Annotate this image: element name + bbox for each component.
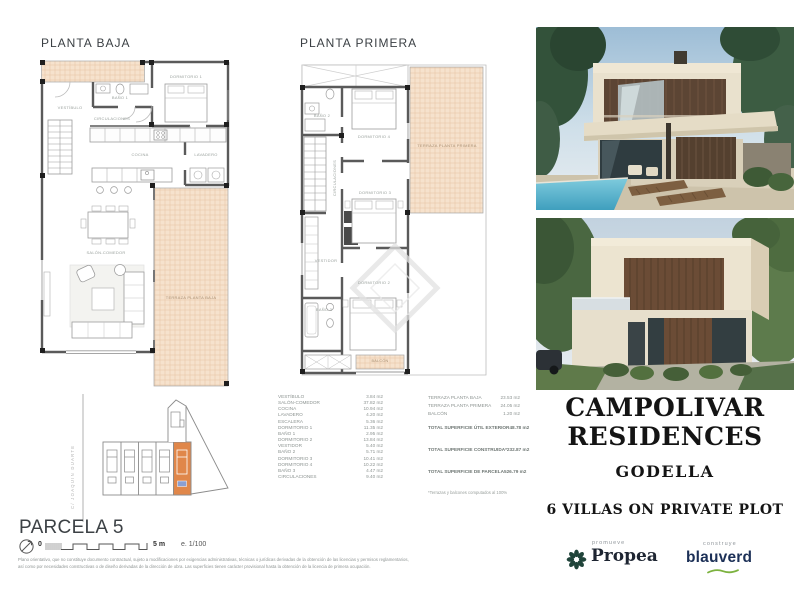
project-location: GODELLA bbox=[536, 462, 794, 481]
villa-photo-pool bbox=[536, 27, 794, 210]
room-label-circulaciones-pb: CIRCULACIONES bbox=[94, 117, 130, 121]
room-label-vestidor: VESTIDOR bbox=[315, 259, 337, 263]
room-label-bano1: BAÑO 1 bbox=[112, 96, 128, 100]
room-label-bano3: BAÑO 3 bbox=[316, 308, 332, 312]
surface-total-row: TOTAL SUPERFICIE CONSTRUIDA* 232.87 m2 bbox=[428, 446, 520, 454]
surface-label: TERRAZA PLANTA BAJA bbox=[428, 394, 482, 402]
room-label-dormitorio2: DORMITORIO 2 bbox=[358, 281, 390, 285]
laundry-appliances bbox=[190, 168, 224, 182]
room-label-circulaciones-pp: CIRCULACIONES bbox=[333, 160, 337, 196]
villa-photo-garden bbox=[536, 218, 794, 390]
room-label-terraza-pb: TERRAZA PLANTA BAJA bbox=[166, 296, 216, 300]
upper-plot bbox=[168, 400, 186, 442]
dining-table bbox=[81, 206, 135, 244]
stairs bbox=[304, 137, 326, 211]
bed-dormitorio4 bbox=[352, 89, 396, 129]
surface-table-interior: VESTÍBULO 3.84 m2 SALÓN-COMEDOR 37.82 m2… bbox=[278, 394, 383, 480]
bottom-closet bbox=[305, 355, 351, 369]
room-label-terraza-pp: TERRAZA PLANTA PRIMERA bbox=[417, 144, 476, 148]
surface-label: BALCÓN bbox=[428, 410, 447, 418]
surface-total-label: TOTAL SUPERFICIE ÚTIL EXTERIOR bbox=[428, 424, 509, 432]
room-label-vestibulo: VESTÍBULO bbox=[58, 106, 83, 110]
scale-end-label: 5 m bbox=[153, 541, 165, 548]
surface-label: CIRCULACIONES bbox=[278, 474, 317, 480]
disclaimer: Plano orientativo, que no constituye doc… bbox=[18, 556, 498, 570]
surface-value: 1.20 m2 bbox=[503, 410, 520, 418]
construye-label: construye bbox=[703, 541, 737, 547]
propea-wordmark: Propea bbox=[591, 548, 658, 565]
planta-baja-title: PLANTA BAJA bbox=[41, 36, 130, 50]
surface-total-value: 48.78 m2 bbox=[509, 424, 529, 432]
surface-total-value: 526.79 m2 bbox=[504, 468, 526, 476]
bed-dormitorio1 bbox=[165, 84, 207, 122]
bathroom1-fixtures bbox=[96, 84, 148, 94]
floor-plan-planta-baja: VESTÍBULO BAÑO 1 CIRCULACIONES DORMITORI… bbox=[40, 60, 230, 387]
floor-plan-planta-primera: BAÑO 2 DORMITORIO 4 CIRCULACIONES DORMIT… bbox=[300, 63, 490, 378]
room-label-bano2: BAÑO 2 bbox=[314, 114, 330, 118]
scale-ratio-label: e. 1/100 bbox=[181, 541, 206, 548]
surface-row: TERRAZA PLANTA PRIMERA 24.05 m2 bbox=[428, 402, 520, 410]
boundary-line bbox=[186, 406, 228, 494]
scale-bar bbox=[45, 541, 150, 552]
surface-total-value: 232.87 m2 bbox=[507, 446, 529, 454]
surface-row: TERRAZA PLANTA BAJA 23.53 m2 bbox=[428, 394, 520, 402]
surface-value: 24.05 m2 bbox=[500, 402, 520, 410]
surface-total-label: TOTAL SUPERFICIE DE PARCELA bbox=[428, 468, 504, 476]
room-label-dormitorio1: DORMITORIO 1 bbox=[170, 75, 202, 79]
surface-footnote: *Terrazas y balcones computados al 100% bbox=[428, 490, 520, 495]
living-area bbox=[44, 264, 144, 338]
total-rows: TOTAL SUPERFICIE ÚTIL EXTERIOR 48.78 m2 … bbox=[428, 424, 520, 476]
disclaimer-line-1: Plano orientativo, que no constituye doc… bbox=[18, 556, 498, 563]
villa bbox=[572, 238, 769, 376]
parcela-title: PARCELA 5 bbox=[19, 517, 124, 539]
exterior-rows: TERRAZA PLANTA BAJA 23.53 m2 TERRAZA PLA… bbox=[428, 394, 520, 418]
blauverd-wave-icon bbox=[707, 568, 739, 574]
roof-skylight bbox=[302, 65, 408, 87]
parcel5-pool-marker bbox=[178, 481, 187, 487]
scale-zero-label: 0 bbox=[38, 541, 42, 548]
brochure-page: { "plans": { "baja": { "title": "PLANTA … bbox=[0, 0, 800, 600]
brand-block: CAMPOLIVAR RESIDENCES GODELLA 6 VILLAS O… bbox=[536, 393, 794, 518]
bed-dormitorio3 bbox=[345, 199, 403, 243]
project-tagline: 6 VILLAS ON PRIVATE PLOT bbox=[536, 502, 794, 518]
room-label-dormitorio4: DORMITORIO 4 bbox=[358, 135, 390, 139]
stairs bbox=[48, 120, 72, 174]
room-label-balcon: BALCÓN bbox=[371, 359, 388, 363]
planta-primera-drawing bbox=[300, 63, 490, 378]
wardrobe bbox=[305, 217, 318, 289]
project-title-line2: RESIDENCES bbox=[536, 422, 794, 451]
surface-total-row: TOTAL SUPERFICIE DE PARCELA 526.79 m2 bbox=[428, 468, 520, 476]
room-label-lavadero: LAVADERO bbox=[194, 153, 217, 157]
room-label-salon-comedor: SALÓN-COMEDOR bbox=[86, 251, 125, 255]
blauverd-wordmark: blauverd bbox=[686, 550, 752, 566]
disclaimer-line-2: así como por necesidades constructivas o… bbox=[18, 563, 498, 570]
surface-row: CIRCULACIONES 9.40 m2 bbox=[278, 474, 383, 480]
surface-value: 9.40 m2 bbox=[366, 474, 383, 480]
surface-total-label: TOTAL SUPERFICIE CONSTRUIDA* bbox=[428, 446, 507, 454]
surface-table-exterior: TERRAZA PLANTA BAJA 23.53 m2 TERRAZA PLA… bbox=[428, 394, 520, 495]
surface-label: TERRAZA PLANTA PRIMERA bbox=[428, 402, 491, 410]
surface-total-row: TOTAL SUPERFICIE ÚTIL EXTERIOR 48.78 m2 bbox=[428, 424, 520, 432]
kitchen-cabinets bbox=[90, 128, 226, 142]
project-title-line1: CAMPOLIVAR bbox=[536, 393, 794, 422]
planta-primera-title: PLANTA PRIMERA bbox=[300, 36, 417, 50]
room-label-dormitorio3: DORMITORIO 3 bbox=[359, 191, 391, 195]
terrace-planta-primera bbox=[410, 67, 483, 213]
surface-row: BALCÓN 1.20 m2 bbox=[428, 410, 520, 418]
room-label-cocina: COCINA bbox=[131, 153, 148, 157]
terrace-top-left bbox=[42, 61, 145, 82]
street-label: C/ JOAQUIN DUARTE bbox=[70, 445, 75, 509]
propea-flower-icon bbox=[566, 549, 587, 570]
surface-value: 23.53 m2 bbox=[500, 394, 520, 402]
terrace-bottom-right bbox=[154, 188, 228, 386]
north-compass-icon bbox=[18, 538, 35, 555]
